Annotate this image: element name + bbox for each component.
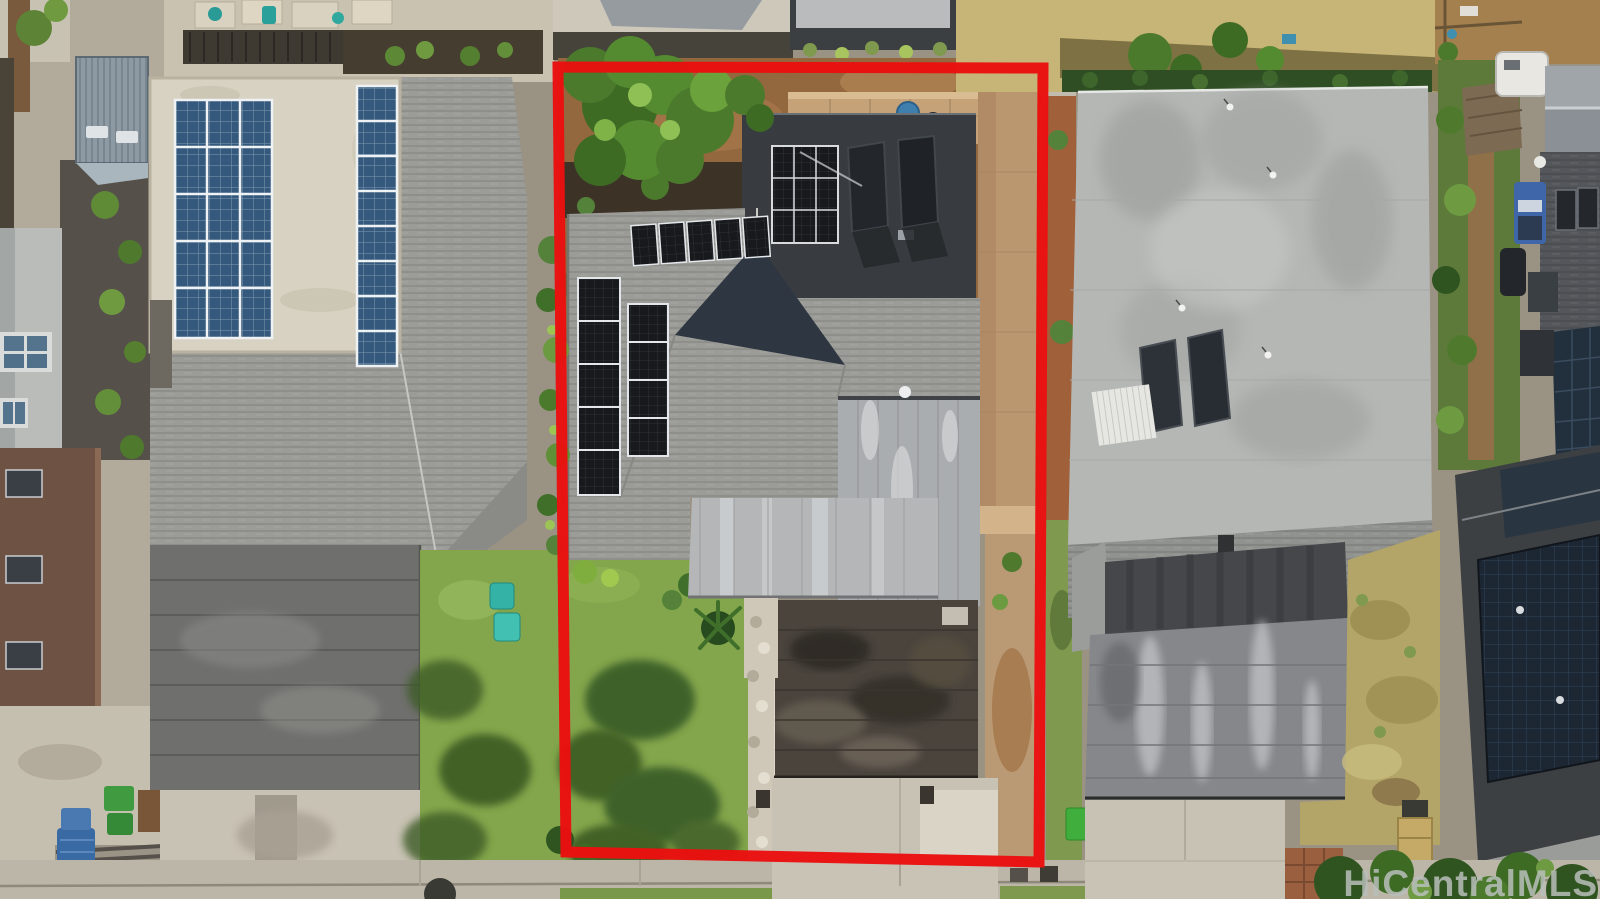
right-garage-roof <box>1072 542 1348 800</box>
green-bin-left <box>104 786 134 811</box>
corrugated-shed <box>76 57 148 185</box>
weathered-garage-roof <box>770 600 978 778</box>
patio-lounge-chairs <box>195 0 392 28</box>
blue-solar-array-main <box>175 100 272 338</box>
lawn-band <box>403 550 755 876</box>
white-gable-roof <box>0 228 62 463</box>
black-solar-array-rear <box>772 146 838 243</box>
brown-flat-roof <box>0 448 101 706</box>
patio-roof <box>688 498 938 598</box>
far-right-solar-house <box>1455 445 1600 878</box>
aerial-photo-canvas <box>0 0 1600 899</box>
black-panel-column-a <box>578 278 620 495</box>
aerial-photo: HiCentralMLS <box>0 0 1600 899</box>
left-garage-roof <box>150 545 420 790</box>
blue-solar-array-strip <box>357 86 397 366</box>
pergola <box>183 30 343 64</box>
navy-solar-roof <box>1552 326 1600 462</box>
black-panel-ridge-row <box>631 216 770 265</box>
gable-metal-roof <box>1545 66 1600 154</box>
black-panel-column-b <box>628 304 668 456</box>
white-trailer <box>1496 52 1548 96</box>
right-flat-roof <box>1068 86 1432 545</box>
subject-driveway <box>756 778 998 862</box>
green-trash-bin <box>1066 808 1088 840</box>
